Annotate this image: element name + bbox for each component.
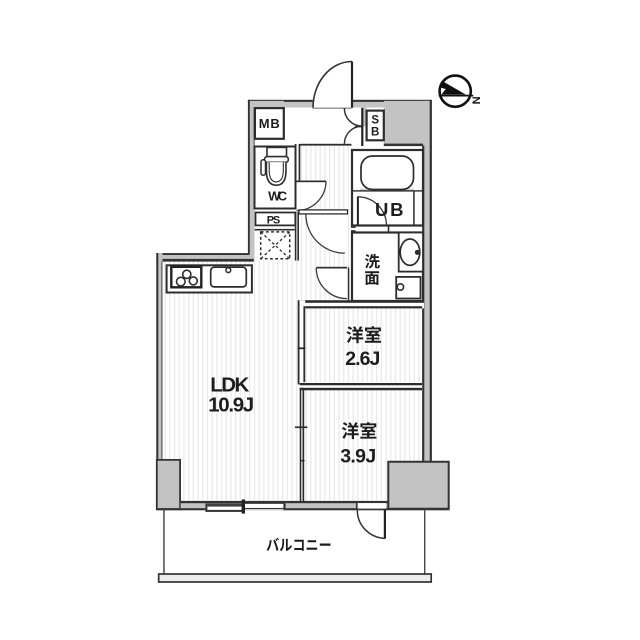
svg-text:3.9J: 3.9J: [340, 445, 376, 467]
svg-text:PS: PS: [267, 214, 281, 226]
svg-text:N: N: [470, 96, 482, 104]
svg-text:2.6J: 2.6J: [345, 348, 380, 370]
svg-text:B: B: [371, 127, 379, 139]
svg-text:MB: MB: [259, 116, 280, 131]
svg-text:UB: UB: [375, 199, 404, 220]
svg-text:10.9J: 10.9J: [208, 394, 254, 417]
svg-text:S: S: [371, 114, 379, 126]
svg-text:WC: WC: [268, 189, 288, 204]
